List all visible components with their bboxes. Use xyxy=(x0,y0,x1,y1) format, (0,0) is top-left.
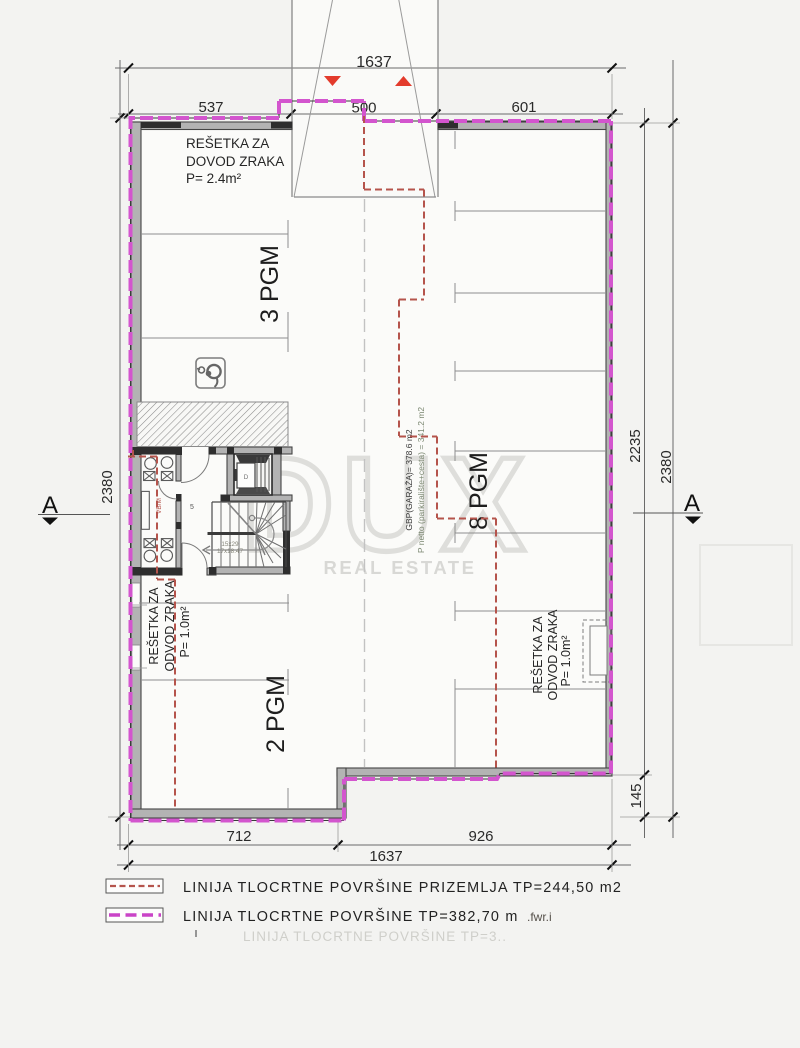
svg-text:2380: 2380 xyxy=(658,450,675,483)
svg-text:926: 926 xyxy=(468,828,493,845)
svg-text:P= 1.0m²: P= 1.0m² xyxy=(559,635,573,686)
svg-text:1637: 1637 xyxy=(369,848,402,865)
svg-text:REŠETKA ZA: REŠETKA ZA xyxy=(530,616,545,694)
svg-text:P= 1.0m²: P= 1.0m² xyxy=(178,606,192,657)
svg-text:.fwr.i: .fwr.i xyxy=(527,910,552,924)
svg-text:537: 537 xyxy=(198,99,223,116)
svg-text:712: 712 xyxy=(226,828,251,845)
svg-text:LINIJA TLOCRTNE POVRŠINE PRIZE: LINIJA TLOCRTNE POVRŠINE PRIZEMLJA TP=24… xyxy=(183,879,622,896)
svg-text:15x29: 15x29 xyxy=(221,541,239,548)
svg-text:REAL ESTATE: REAL ESTATE xyxy=(324,557,477,578)
svg-text:2 PGM: 2 PGM xyxy=(262,675,290,753)
svg-text:VB/M: VB/M xyxy=(156,498,163,514)
svg-text:LINIJA TLOCRTNE POVRŠINE TP=3: LINIJA TLOCRTNE POVRŠINE TP=382,70 m xyxy=(183,908,519,925)
svg-text:DOVOD ZRAKA: DOVOD ZRAKA xyxy=(186,154,284,169)
svg-text:8 PGM: 8 PGM xyxy=(465,452,493,530)
svg-text:17x18.47: 17x18.47 xyxy=(217,548,243,555)
svg-text:REŠETKA ZA: REŠETKA ZA xyxy=(146,587,161,665)
svg-text:2235: 2235 xyxy=(627,429,644,462)
svg-text:2380: 2380 xyxy=(99,470,116,503)
svg-text:LINIJA TLOCRTNE POVRŠINE TP=3: LINIJA TLOCRTNE POVRŠINE TP=3.. xyxy=(243,929,507,944)
svg-text:D: D xyxy=(244,474,249,481)
svg-text:145: 145 xyxy=(628,783,645,808)
svg-text:ODVOD ZRAKA: ODVOD ZRAKA xyxy=(546,609,560,701)
svg-text:3 PGM: 3 PGM xyxy=(256,245,284,323)
svg-text:REŠETKA ZA: REŠETKA ZA xyxy=(186,136,269,151)
svg-text:P netto (parkiralište+cesta) =: P netto (parkiralište+cesta) = 341.2 m2 xyxy=(416,407,426,554)
svg-text:601: 601 xyxy=(511,99,536,116)
svg-text:1637: 1637 xyxy=(356,54,392,71)
svg-text:5: 5 xyxy=(190,504,194,511)
svg-text:GBP(GARAŽA)= 378.6 m2: GBP(GARAŽA)= 378.6 m2 xyxy=(404,429,414,531)
svg-text:P= 2.4m²: P= 2.4m² xyxy=(186,171,242,186)
